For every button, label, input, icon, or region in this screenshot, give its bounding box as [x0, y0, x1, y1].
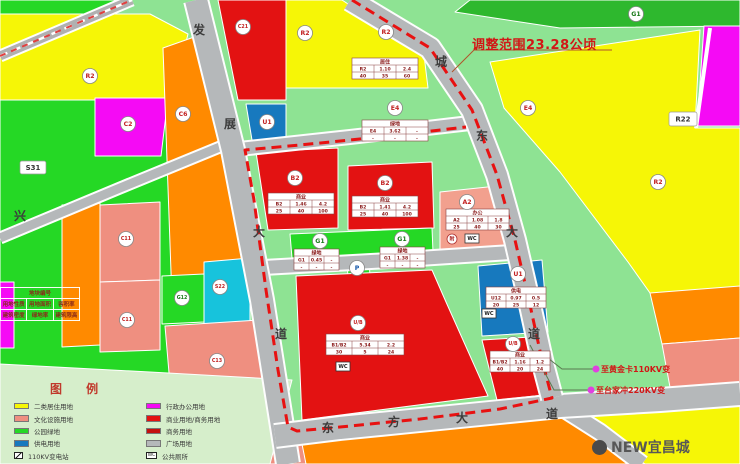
legend-label: 供电用地 [34, 438, 60, 448]
table-text: 20 [493, 302, 499, 308]
parcel-circle-C2: C2 [121, 117, 136, 132]
legend-label: 文化设施用地 [34, 414, 73, 424]
circle-label: R2 [381, 29, 390, 36]
parcel-circle-G12: G12 [175, 291, 190, 306]
table-text: 24 [537, 366, 543, 372]
road-label-char: 展 [224, 117, 236, 131]
legend-item: WC公共厕所 [138, 450, 270, 462]
table-text: 24 [388, 349, 394, 355]
table-text: B2 [276, 201, 283, 207]
table-text: 2.2 [387, 342, 395, 348]
circle-label: R2 [300, 30, 309, 37]
circle-label: R2 [85, 73, 94, 80]
attr-cell: 建筑限高 [53, 310, 79, 321]
legend-label: 公共厕所 [162, 451, 188, 461]
parcel-info-table: 商业B1/B21.161.2402024 [490, 351, 550, 372]
table-text: 商业 [296, 193, 306, 200]
table-text: A2 [453, 217, 460, 223]
circle-label: S22 [215, 284, 225, 290]
legend-swatch [146, 440, 161, 447]
circle-label: G12 [177, 295, 188, 301]
parcel-circle-E4: E4 [388, 101, 403, 116]
circle-label: G1 [397, 236, 406, 243]
road-label-char: 道 [275, 326, 287, 341]
table-text: 30 [495, 224, 501, 230]
legend-label: 商务用地 [166, 426, 192, 436]
parcel-residential-top-left [0, 14, 188, 100]
substation-note-110kv: 至黄金卡110KV变 [601, 364, 670, 375]
substation-dot [588, 387, 595, 394]
legend-swatch [14, 440, 29, 447]
legend-column-left: 二类居住用地文化设施用地公园绿地供电用地110KV变电站泵站 [6, 400, 138, 464]
parcel-circle-R2: R2 [298, 26, 313, 41]
watermark: NEW宜昌城 [592, 437, 690, 457]
table-text: 5 [363, 349, 366, 355]
parcel-circle-B2: B2 [378, 176, 393, 191]
parcel-info-table: 供电U120.970.5202512 [486, 287, 546, 308]
road-label-char: 兴 [14, 208, 26, 223]
circle-label: B2 [290, 175, 299, 182]
circle-label: C2 [124, 121, 133, 128]
legend-panel: 图 例 二类居住用地文化设施用地公园绿地供电用地110KV变电站泵站 行政办公用… [6, 378, 271, 464]
circle-label: C13 [212, 358, 222, 364]
table-text: - [417, 263, 419, 268]
t: WC [467, 236, 477, 242]
table-text: 1.2 [536, 359, 544, 365]
table-text: 25 [513, 302, 519, 308]
parcel-circle-C21: C21 [236, 20, 251, 35]
table-text: 绿地 [311, 249, 321, 256]
table-text: 40 [382, 211, 388, 217]
table-text: 商业 [380, 196, 390, 203]
attr-cell: 绿地率 [27, 310, 53, 321]
parcel-circle-U-B: U/B [506, 337, 521, 352]
legend-swatch [146, 403, 161, 410]
parcel-circle-E4: E4 [521, 101, 536, 116]
parcel-circle-C11: C11 [120, 313, 135, 328]
legend-label: 110KV变电站 [28, 451, 69, 461]
legend-swatch [14, 415, 29, 422]
parcel-circle-R2: R2 [651, 175, 666, 190]
table-text: G1 [384, 255, 391, 261]
table-text: E4 [370, 128, 376, 134]
parcel-circle-U1: U1 [511, 267, 526, 282]
parcel-info-table: 商业B21.414.22540100 [352, 196, 418, 217]
circle-label: C21 [238, 24, 248, 30]
circle-label: A2 [462, 199, 471, 206]
label-S31: S31 [20, 161, 46, 174]
parcel-info-table: 商业B21.464.22540100 [268, 193, 334, 214]
icon-wc: WC [146, 452, 157, 459]
table-text: 居住 [380, 58, 390, 65]
attr-cell: 用地面积 [27, 299, 53, 310]
wc-icon: WC [482, 309, 496, 318]
legend-label: 行政办公用地 [166, 401, 205, 411]
table-text: - [416, 129, 418, 134]
parcel-circle-P: P [350, 261, 365, 276]
legend-item: 商业用地/商务用地 [138, 412, 270, 424]
attr-cell: 用地性质 [1, 299, 27, 310]
table-text: 30 [336, 349, 342, 355]
legend-swatch [146, 415, 161, 422]
table-text: 绿地 [397, 247, 407, 254]
table-text: 25 [276, 208, 282, 214]
road-label-char: 大 [506, 224, 518, 239]
table-text: 1.41 [379, 204, 390, 210]
parcel-orange-west-strip [62, 203, 100, 347]
table-text: 40 [497, 366, 503, 372]
legend-label: 广场用地 [166, 438, 192, 448]
legend-item: 商务用地 [138, 425, 270, 437]
table-text: 1.10 [379, 66, 390, 72]
legend-label: 二类居住用地 [34, 401, 73, 411]
legend-swatch [146, 428, 161, 435]
parcel-circle-G1: G1 [313, 234, 328, 249]
table-text: 供电 [510, 287, 521, 294]
road-label-char: 道 [546, 406, 558, 421]
circle-label: E4 [391, 105, 400, 112]
attr-cell: 建筑密度 [1, 310, 27, 321]
table-text: - [387, 263, 389, 268]
table-text: 1.8 [494, 217, 502, 223]
table-text: - [372, 136, 374, 141]
legend-item: 公园绿地 [6, 425, 138, 437]
t: 附 [449, 236, 454, 243]
legend-label: 商业用地/商务用地 [166, 414, 220, 424]
parcel-circle-U-B: U/B [351, 316, 366, 331]
table-text: 0.45 [311, 257, 322, 263]
table-text: 25 [453, 224, 459, 230]
circle-label: P [355, 265, 360, 272]
label-text: R22 [675, 116, 690, 124]
parcel-orange-east [650, 286, 740, 344]
circle-label: R2 [653, 179, 662, 186]
parcel-info-table: 办公A21.081.8254030 [446, 209, 509, 230]
table-text: 40 [360, 73, 366, 79]
table-text: 1.08 [472, 217, 483, 223]
circle-label: U/B [353, 320, 363, 326]
legend-title: 图 例 [50, 380, 271, 397]
table-text: R2 [360, 66, 367, 72]
parcel-circle-U1: U1 [260, 115, 275, 130]
adjustment-scope-annotation: 调整范围23.28公顷 [472, 34, 597, 53]
legend-columns: 二类居住用地文化设施用地公园绿地供电用地110KV变电站泵站 行政办公用地商业用… [6, 400, 271, 464]
circle-label: E4 [524, 105, 533, 112]
attribute-table-key: 地块编号 用地性质 用地面积 容积率 建筑密度 绿地率 建筑限高 [0, 287, 80, 321]
legend-swatch [14, 403, 29, 410]
table-text: 4.2 [319, 201, 327, 207]
t: WC [338, 364, 348, 370]
road-label-char: 道 [528, 326, 540, 341]
table-text: 绿地 [390, 120, 400, 127]
parcel-info-table: 商业B1/B25.342.230524 [326, 334, 404, 355]
watermark-logo-icon [592, 440, 607, 455]
table-text: G1 [298, 257, 305, 263]
table-text: 1.38 [397, 255, 408, 261]
table-text: - [402, 263, 404, 268]
table-text: 40 [298, 208, 304, 214]
parcel-info-table: 绿地G11.38---- [380, 247, 425, 268]
legend-item: 110KV变电站 [6, 450, 138, 462]
circle-label: U/B [508, 341, 518, 347]
legend-label: 公园绿地 [34, 426, 60, 436]
watermark-text: NEW宜昌城 [611, 437, 690, 457]
parcel-circle-R2: R2 [379, 25, 394, 40]
label-R22: R22 [669, 112, 697, 126]
table-text: 办公 [472, 209, 482, 216]
table-text: - [394, 136, 396, 141]
table-text: 35 [382, 73, 388, 79]
table-text: 60 [404, 73, 410, 79]
legend-item: 广场用地 [138, 437, 270, 449]
parcel-circle-S22: S22 [213, 280, 228, 295]
legend-item: 文化设施用地 [6, 412, 138, 424]
attr-header: 地块编号 [1, 288, 80, 299]
table-text: - [416, 136, 418, 141]
road-label-char: 方 [388, 414, 400, 429]
substation-dot [593, 366, 600, 373]
parcel-circle-A2: A2 [460, 195, 475, 210]
table-text: U12 [491, 295, 501, 301]
fu-annex-icon: 附 [447, 234, 457, 244]
road-label-char: 发 [192, 22, 206, 37]
table-text: - [331, 265, 333, 270]
table-text: - [331, 258, 333, 263]
table-text: 商业 [360, 334, 370, 341]
table-text: 20 [517, 366, 523, 372]
road-label-char: 大 [253, 224, 265, 239]
road-label-char: 东 [322, 420, 334, 435]
planning-map-stage: 居住R21.102.4403560绿地E43.62----商业B21.464.2… [0, 0, 740, 464]
legend-item: 供电用地 [6, 437, 138, 449]
circle-label: C11 [122, 317, 132, 323]
table-text: 12 [533, 302, 539, 308]
table-text: 100 [402, 211, 412, 217]
parcel-circle-R2: R2 [83, 69, 98, 84]
substation-note-220kv: 至台家冲220KV变 [596, 385, 665, 396]
icon-substation [14, 452, 23, 459]
table-text: 2.4 [403, 66, 411, 72]
road-label-char: 大 [456, 410, 468, 425]
parcel-info-table: 居住R21.102.4403560 [352, 58, 418, 79]
parcel-circle-B2: B2 [288, 171, 303, 186]
parcel-commercial-B2-west [256, 148, 338, 230]
circle-label: B2 [380, 180, 389, 187]
parcel-circle-C11: C11 [119, 232, 134, 247]
table-text: B1/B2 [492, 359, 507, 365]
parcel-info-table: 绿地G10.45---- [294, 249, 339, 270]
table-text: 4.2 [403, 204, 411, 210]
legend-item: 行政办公用地 [138, 400, 270, 412]
table-text: 5.34 [359, 342, 370, 348]
table-text: 0.97 [510, 295, 521, 301]
table-text: 0.5 [532, 295, 540, 301]
wc-icon: WC [465, 234, 479, 243]
road-label-char: 城 [435, 54, 447, 69]
legend-column-right: 行政办公用地商业用地/商务用地商务用地广场用地WC公共厕所P社会公共停车场 [138, 400, 270, 464]
table-text: 1.16 [514, 359, 525, 365]
parcel-circle-G1: G1 [395, 232, 410, 247]
table-text: - [316, 265, 318, 270]
table-text: - [301, 265, 303, 270]
circle-label: G1 [631, 11, 640, 18]
label-text: S31 [26, 164, 41, 172]
t: WC [484, 311, 494, 317]
table-text: 3.62 [389, 128, 400, 134]
parcel-circle-G1: G1 [629, 7, 644, 22]
table-text: B2 [360, 204, 367, 210]
circle-label: G1 [315, 238, 324, 245]
table-text: 40 [474, 224, 480, 230]
table-text: B1/B2 [331, 342, 346, 348]
table-text: 1.46 [295, 201, 306, 207]
circle-label: C11 [121, 236, 131, 242]
table-text: - [417, 256, 419, 261]
parcel-circle-C6: C6 [176, 107, 191, 122]
wc-icon: WC [336, 362, 350, 371]
table-text: 100 [318, 208, 328, 214]
attr-cell: 容积率 [53, 299, 79, 310]
circle-label: U1 [262, 119, 271, 126]
parcel-circle-C13: C13 [210, 354, 225, 369]
legend-item: 二类居住用地 [6, 400, 138, 412]
legend-swatch [14, 428, 29, 435]
table-text: 25 [360, 211, 366, 217]
table-text: 商业 [515, 351, 525, 358]
parcel-info-table: 绿地E43.62---- [362, 120, 428, 141]
road-label-char: 东 [476, 128, 488, 143]
circle-label: C6 [179, 111, 188, 118]
circle-label: U1 [513, 271, 522, 278]
